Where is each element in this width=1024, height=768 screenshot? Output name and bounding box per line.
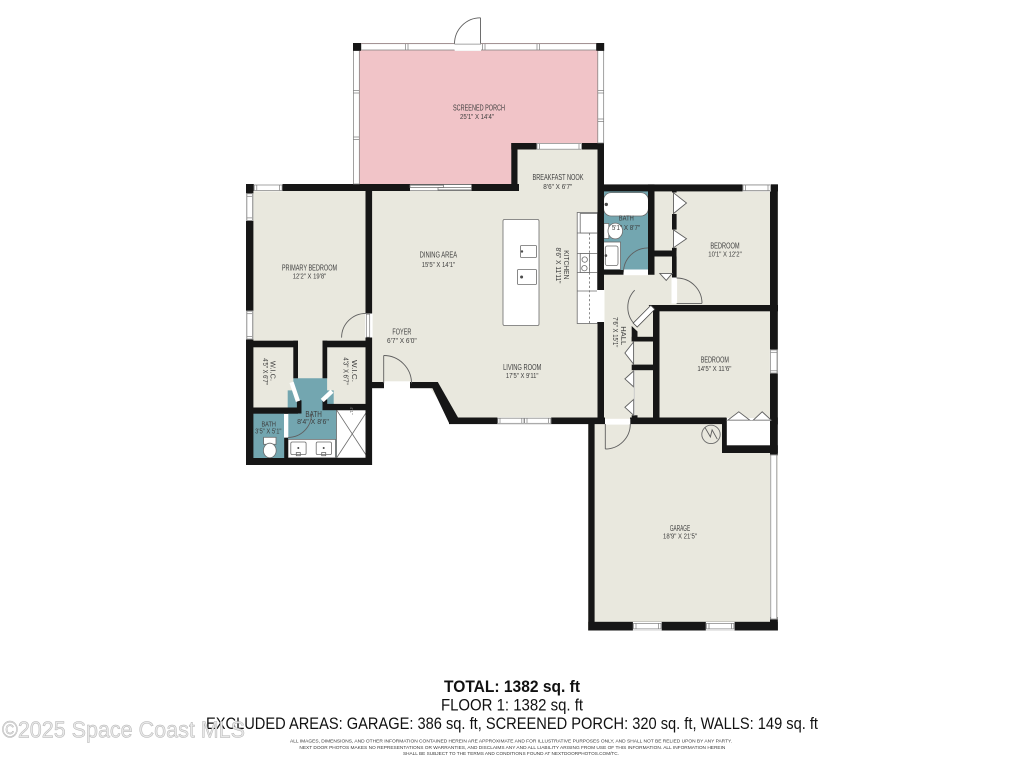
svg-text:17'5" X 9'11": 17'5" X 9'11" <box>506 371 539 380</box>
svg-text:BREAKFAST NOOK: BREAKFAST NOOK <box>533 173 584 182</box>
svg-text:10'1" X 12'2": 10'1" X 12'2" <box>708 249 742 258</box>
svg-text:8'6" X 11'11": 8'6" X 11'11" <box>554 248 563 284</box>
svg-text:©2025 Space Coast MLS: ©2025 Space Coast MLS <box>2 717 245 743</box>
svg-text:8'4" X 8'6": 8'4" X 8'6" <box>297 417 329 426</box>
svg-text:ALL IMAGES, DIMENSIONS, AND OT: ALL IMAGES, DIMENSIONS, AND OTHER INFORM… <box>290 739 732 745</box>
svg-text:DINING AREA: DINING AREA <box>420 250 458 259</box>
svg-text:8'6" X 6'7": 8'6" X 6'7" <box>543 182 572 191</box>
svg-text:4'5" X 6'7": 4'5" X 6'7" <box>261 358 270 385</box>
svg-text:18'9" X 21'5": 18'9" X 21'5" <box>663 532 697 541</box>
svg-text:EXCLUDED AREAS: GARAGE: 386 sq: EXCLUDED AREAS: GARAGE: 386 sq. ft, SCRE… <box>206 714 818 733</box>
svg-text:4'1": 4'1" <box>349 407 354 416</box>
svg-text:3'5" X 5'1": 3'5" X 5'1" <box>255 427 282 436</box>
svg-text:6'7" X 6'0": 6'7" X 6'0" <box>387 336 417 345</box>
svg-text:12'2" X 19'8": 12'2" X 19'8" <box>293 272 327 281</box>
svg-text:5'1" X 8'7": 5'1" X 8'7" <box>612 223 641 232</box>
svg-text:NEXT DOOR PHOTOS MAKES NO REPR: NEXT DOOR PHOTOS MAKES NO REPRESENTATION… <box>299 745 726 751</box>
svg-text:TOTAL: 1382 sq. ft: TOTAL: 1382 sq. ft <box>444 677 580 696</box>
svg-text:7'6" X 15'1": 7'6" X 15'1" <box>611 317 620 348</box>
svg-text:25'1" X 14'4": 25'1" X 14'4" <box>460 112 494 121</box>
svg-text:4'3" X 6'7": 4'3" X 6'7" <box>341 357 350 385</box>
svg-text:15'5" X 14'1": 15'5" X 14'1" <box>422 260 456 269</box>
svg-text:BATH: BATH <box>619 213 634 222</box>
svg-text:FLOOR 1: 1382 sq. ft: FLOOR 1: 1382 sq. ft <box>441 696 583 715</box>
svg-text:SHALL BE SUBJECT TO THE TERMS: SHALL BE SUBJECT TO THE TERMS AND CONDIT… <box>403 751 619 757</box>
svg-text:14'5" X 11'6": 14'5" X 11'6" <box>697 364 731 373</box>
